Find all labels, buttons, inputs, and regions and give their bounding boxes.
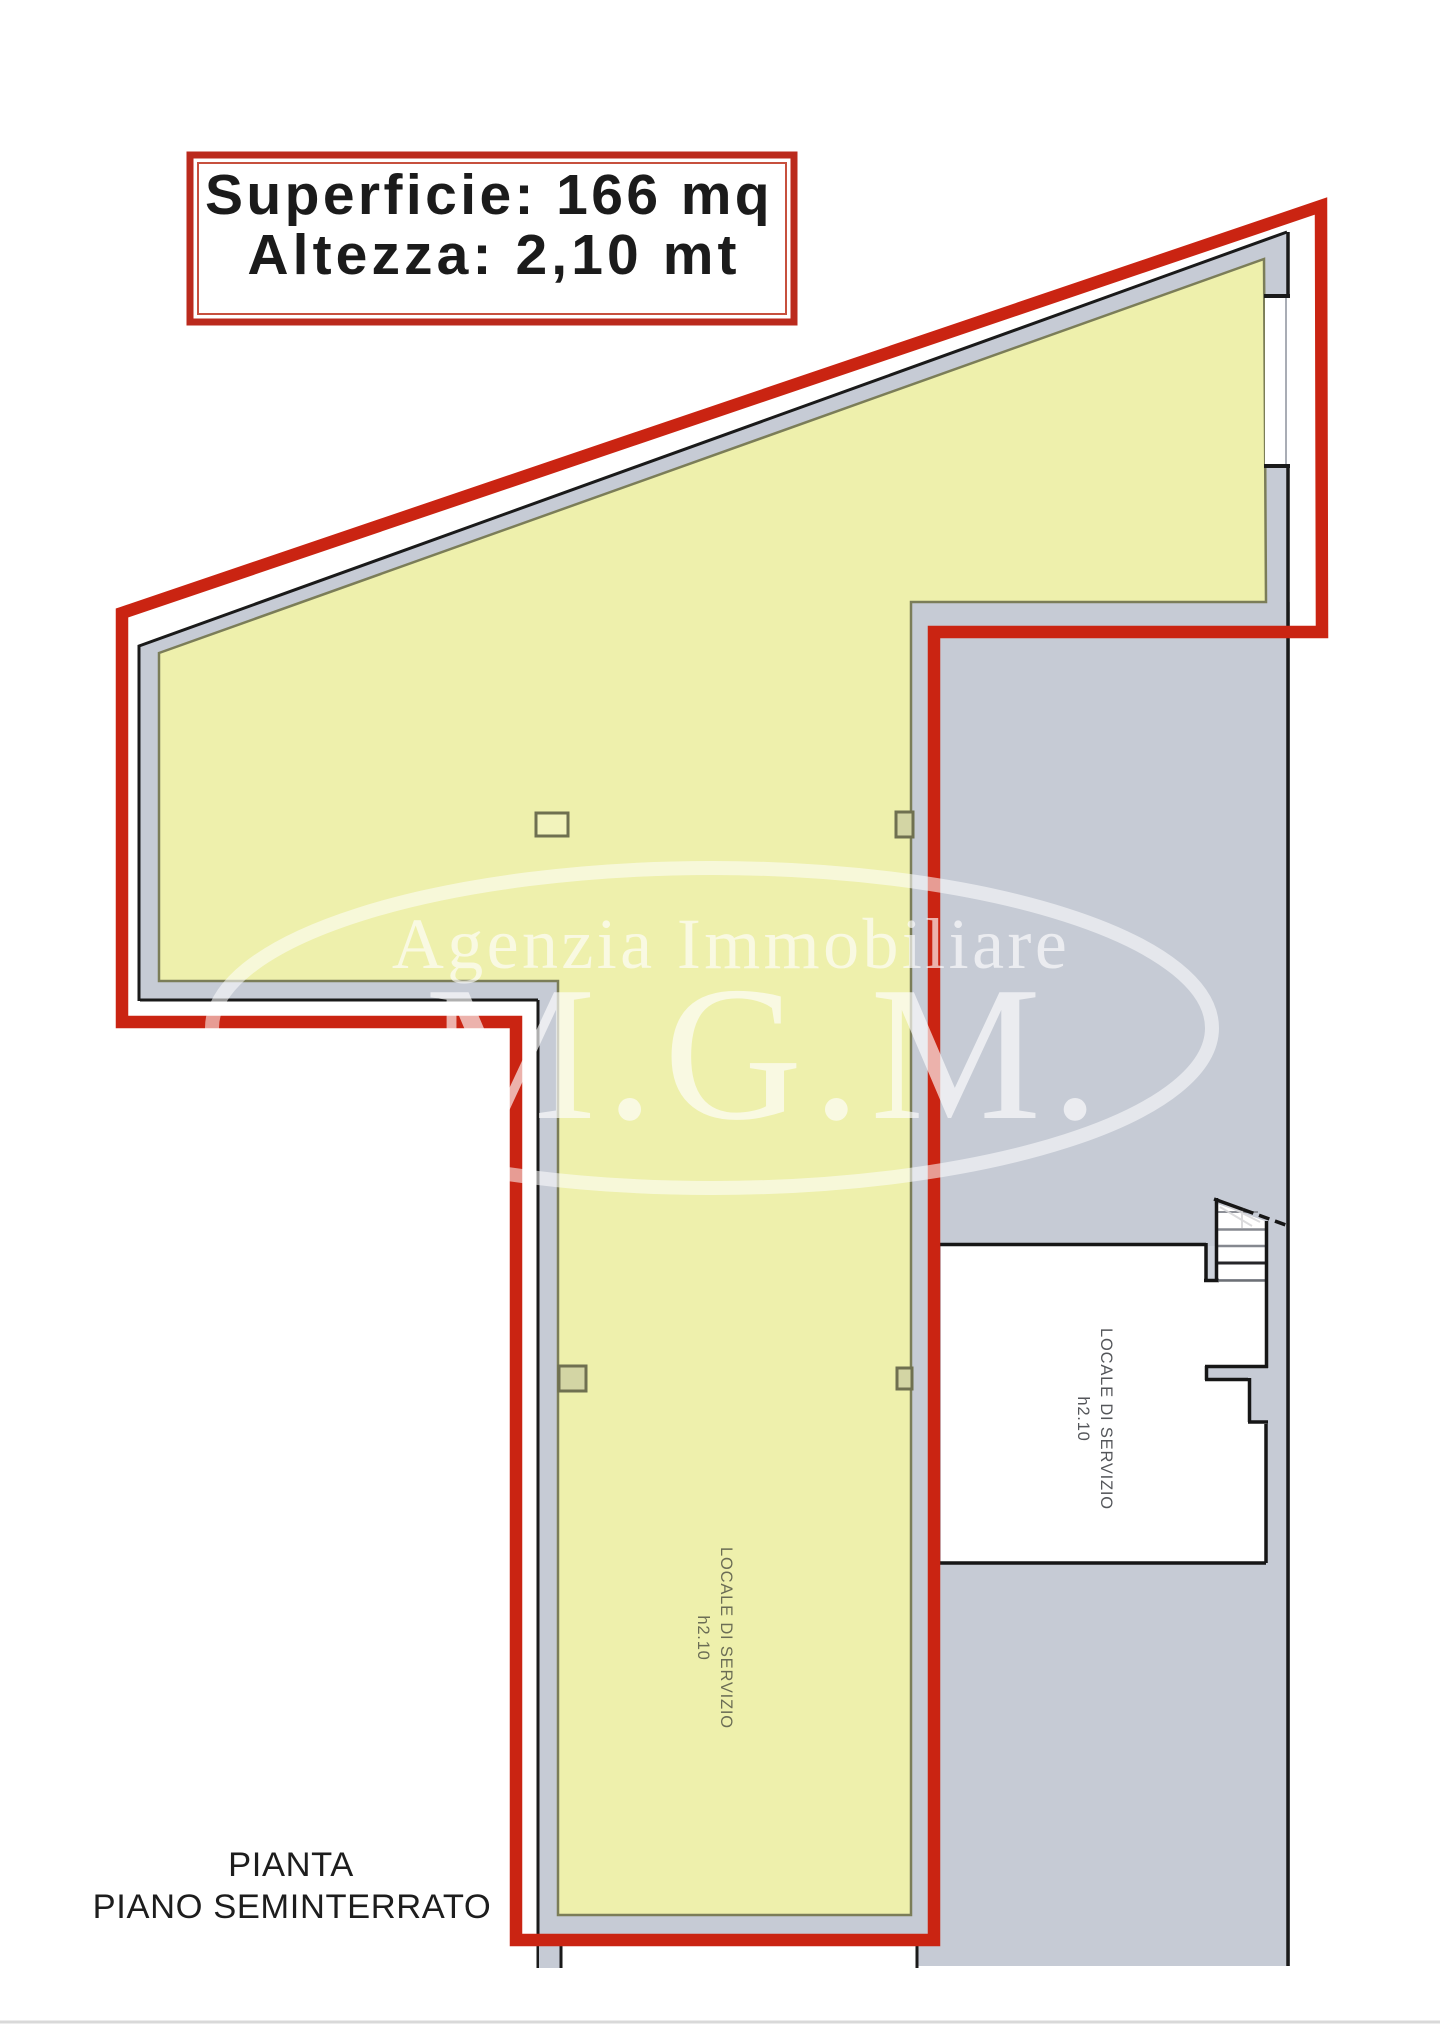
svg-text:Altezza: 2,10 mt: Altezza: 2,10 mt <box>247 223 740 287</box>
svg-text:PIANTA: PIANTA <box>228 1846 354 1884</box>
svg-text:M.G.M.: M.G.M. <box>425 947 1109 1160</box>
svg-text:PIANO SEMINTERRATO: PIANO SEMINTERRATO <box>93 1888 492 1926</box>
svg-text:Superficie: 166 mq: Superficie: 166 mq <box>205 163 773 227</box>
